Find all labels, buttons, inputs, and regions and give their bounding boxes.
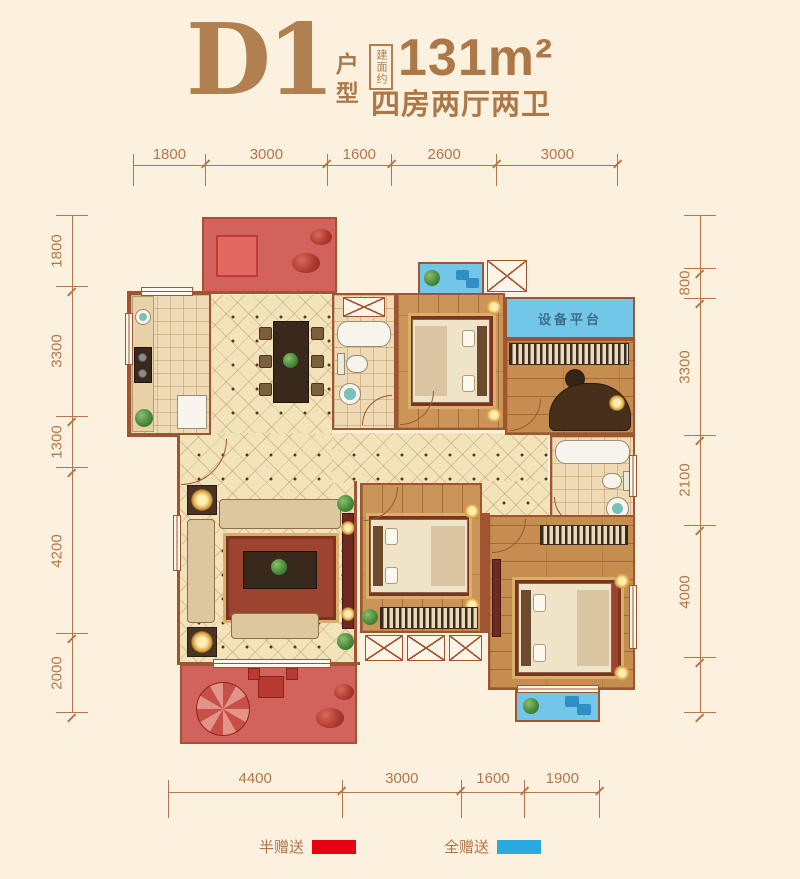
dining-chair — [259, 355, 272, 368]
dimension-segment: 4200 — [46, 468, 88, 634]
nightstand-lamp — [614, 573, 630, 589]
toilet-tank — [337, 353, 345, 375]
flue-box — [365, 635, 403, 661]
equipment-platform-label: 设备平台 — [538, 309, 602, 328]
plant — [135, 409, 153, 427]
balcony-mat — [216, 235, 258, 277]
dimension-segment: 1600 — [461, 768, 524, 814]
wall — [354, 481, 357, 665]
flue-box — [343, 297, 385, 317]
kitchen — [129, 293, 211, 435]
window — [141, 287, 193, 296]
door-arc — [509, 399, 541, 431]
table-plant — [283, 353, 298, 368]
dining-chair — [259, 383, 272, 396]
desk-lamp — [609, 395, 625, 411]
balcony-bottom-blue — [515, 688, 600, 722]
dimension-segment: 3300 — [46, 286, 88, 416]
plant — [362, 609, 378, 625]
dimension-segment: 3000 — [342, 768, 461, 814]
pillow — [385, 567, 398, 584]
flue-box — [449, 635, 482, 661]
plan-type-label: 户型 — [332, 52, 357, 110]
blanket — [577, 590, 609, 666]
toilet — [346, 355, 368, 373]
area-value: 131m² — [398, 32, 553, 84]
door-arc — [492, 519, 526, 553]
pillow — [385, 528, 398, 545]
bathtub — [555, 440, 630, 464]
legend-full-gift-swatch — [497, 840, 541, 854]
dimension-segment — [678, 658, 720, 713]
patio-chair — [286, 668, 298, 680]
equipment-platform: 设备平台 — [505, 297, 635, 339]
red-plant — [316, 708, 344, 728]
dimension-segment: 1800 — [133, 146, 206, 186]
balcony-top-red — [202, 217, 337, 293]
plant — [424, 270, 440, 286]
wall-lamp — [341, 607, 355, 621]
pillow — [462, 330, 475, 347]
plant — [271, 559, 287, 575]
nightstand-lamp — [464, 503, 480, 519]
wall — [480, 513, 490, 633]
corridor — [482, 481, 550, 517]
flue-box — [407, 635, 445, 661]
dimension-segment: 4000 — [678, 526, 720, 658]
patio-chair — [248, 668, 260, 680]
legend-half-gift-label: 半赠送 — [259, 836, 304, 857]
dimension-segment: 4400 — [168, 768, 342, 814]
legend-full-gift: 全赠送 — [444, 836, 541, 857]
window — [125, 313, 133, 365]
blanket — [431, 526, 465, 586]
wall-lamp — [341, 521, 355, 535]
bathroom-1 — [332, 293, 396, 430]
stove-burner — [138, 353, 147, 362]
wardrobe — [540, 525, 628, 545]
wall — [127, 434, 180, 437]
kitchen-sink — [135, 309, 151, 325]
door-arc — [362, 395, 392, 425]
stove-burner — [138, 369, 147, 378]
pillow — [533, 644, 546, 662]
cushion — [466, 278, 479, 288]
corner-lamp — [191, 489, 213, 511]
plant — [337, 495, 354, 512]
dining-chair — [311, 355, 324, 368]
balcony-door-window — [517, 685, 599, 693]
red-plant — [292, 253, 320, 273]
pillow — [533, 594, 546, 612]
hallway — [332, 433, 548, 483]
cushion — [577, 704, 591, 715]
nightstand-lamp — [614, 665, 630, 681]
tv-cabinet — [492, 559, 501, 637]
dimension-segment: 2100 — [678, 435, 720, 525]
bedroom-1 — [396, 293, 505, 430]
toilet — [602, 473, 622, 489]
floorplan-drawing: 设备平台 — [125, 215, 665, 747]
dimension-segment: 1800 — [46, 215, 88, 286]
sofa — [219, 499, 341, 529]
bedroom-2 — [360, 483, 482, 633]
corner-lamp — [191, 631, 213, 653]
dimension-ruler-right: 800 3300 2100 4000 — [678, 215, 720, 713]
dimension-ruler-bottom: 4400 3000 1600 1900 — [168, 768, 600, 814]
dining-chair — [311, 327, 324, 340]
dimension-ruler-top: 1800 3000 1600 2600 3000 — [133, 146, 618, 186]
nightstand-lamp — [486, 299, 502, 315]
area-tag-box: 建面约 — [369, 44, 393, 90]
plan-code-title: D1 — [186, 12, 331, 110]
dimension-segment: 800 — [678, 268, 720, 298]
study — [505, 339, 635, 435]
nightstand-lamp — [486, 407, 502, 423]
dining-chair — [259, 327, 272, 340]
plant — [523, 698, 539, 714]
balcony-door-window — [213, 659, 331, 668]
flue-box — [487, 260, 527, 292]
fridge — [177, 395, 207, 429]
dimension-segment: 3000 — [206, 146, 327, 186]
plant — [337, 633, 354, 650]
pillow — [462, 375, 475, 392]
dimension-segment: 2600 — [392, 146, 497, 186]
patio-table — [258, 676, 284, 698]
dimension-ruler-left: 1800 3300 1300 4200 2000 — [46, 215, 88, 713]
wardrobe — [380, 607, 478, 629]
bed — [370, 519, 468, 593]
bed-headboard — [477, 326, 487, 396]
patio-umbrella — [196, 682, 250, 736]
window — [173, 515, 181, 571]
bathtub — [337, 321, 391, 347]
dimension-segment: 1300 — [46, 417, 88, 468]
blanket — [415, 326, 447, 396]
master-bedroom — [488, 515, 635, 690]
dining-chair — [311, 383, 324, 396]
bed — [518, 583, 612, 673]
sofa — [187, 519, 215, 623]
dimension-segment: 1600 — [327, 146, 392, 186]
red-plant — [334, 684, 354, 700]
washbasin — [339, 383, 361, 405]
dimension-segment: 3300 — [678, 298, 720, 435]
legend: 半赠送 全赠送 — [0, 836, 800, 857]
dimension-segment: 1900 — [525, 768, 600, 814]
bed-headboard — [521, 590, 531, 666]
balcony-top-blue — [418, 262, 484, 295]
dimension-segment: 3000 — [497, 146, 618, 186]
legend-half-gift: 半赠送 — [259, 836, 356, 857]
red-plant — [310, 229, 332, 245]
legend-half-gift-swatch — [312, 840, 356, 854]
floorplan-page: D1 户型 建面约 131m² 四房两厅两卫 1800 3000 1600 26… — [0, 0, 800, 879]
legend-full-gift-label: 全赠送 — [444, 836, 489, 857]
layout-description: 四房两厅两卫 — [371, 90, 551, 122]
dimension-segment: 2000 — [46, 634, 88, 713]
window — [629, 585, 637, 649]
door-arc — [400, 391, 434, 425]
sofa-stool — [231, 613, 319, 639]
window — [629, 455, 637, 497]
dimension-segment — [678, 215, 720, 268]
wardrobe — [509, 343, 629, 365]
balcony-bottom-red — [180, 664, 357, 744]
bed-headboard — [373, 526, 383, 586]
